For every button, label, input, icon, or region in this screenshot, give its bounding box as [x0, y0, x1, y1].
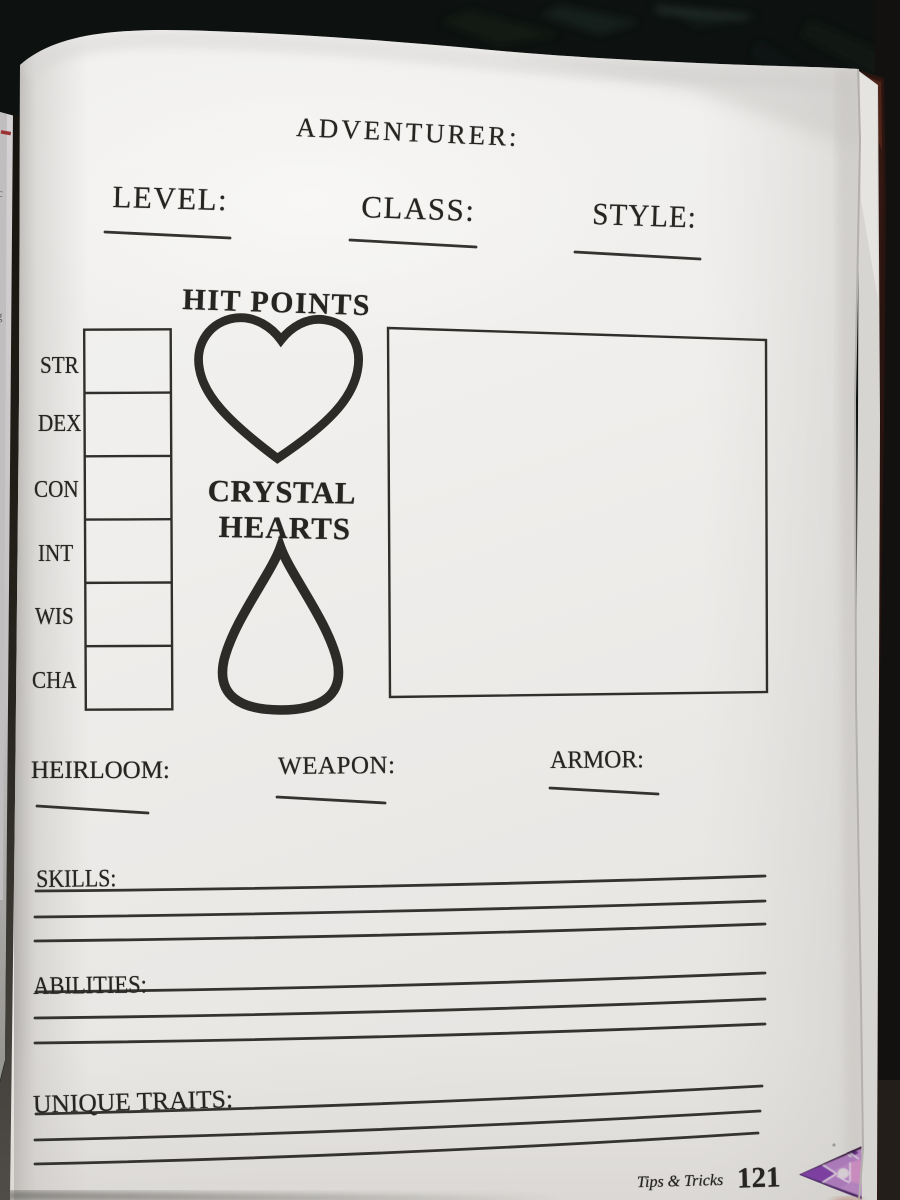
svg-text:c: c: [0, 185, 3, 200]
